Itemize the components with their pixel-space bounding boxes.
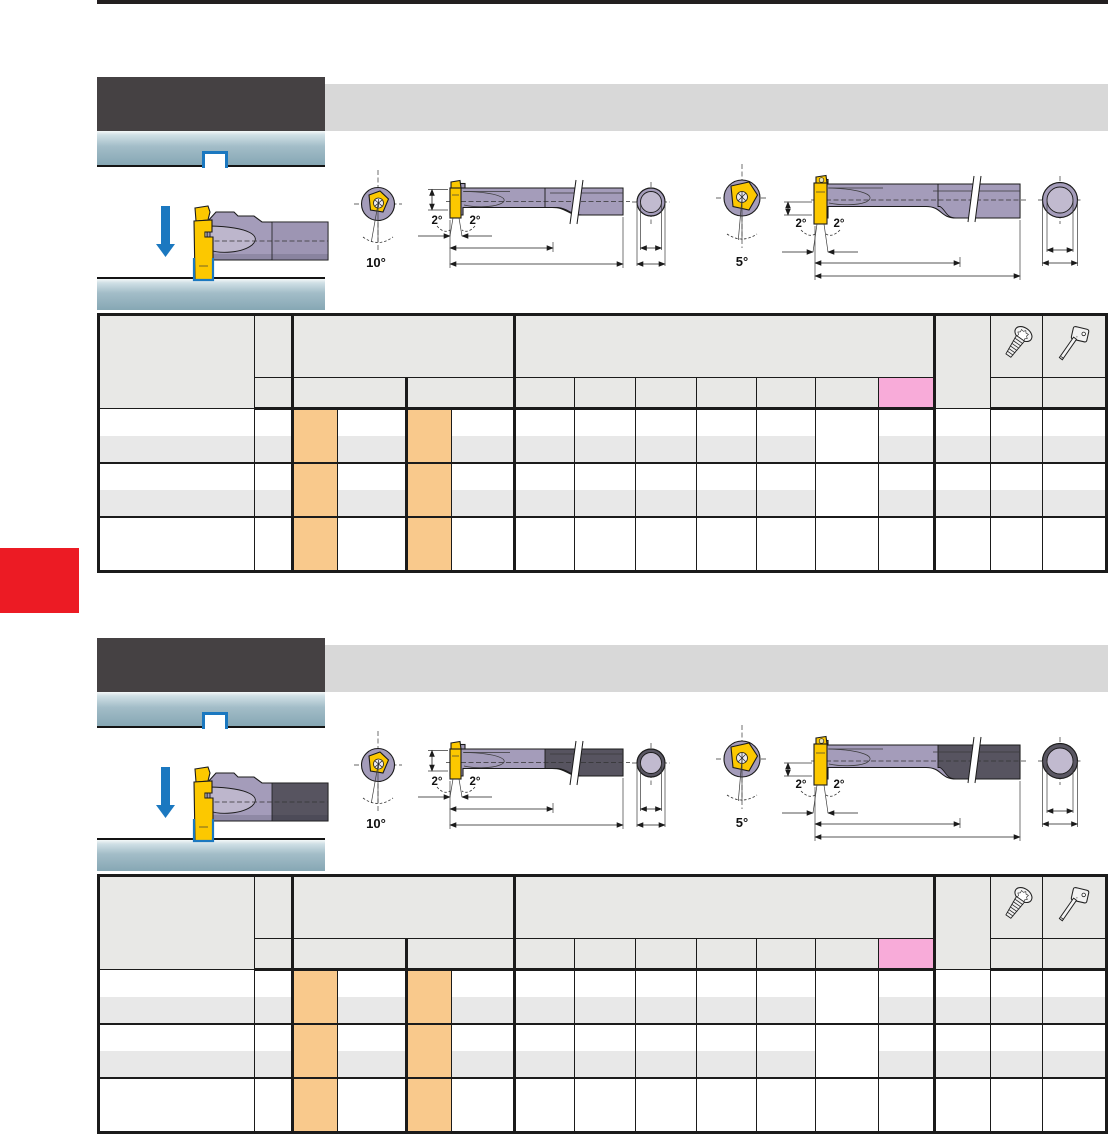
spec-cell (293, 463, 338, 490)
taper-angle-label: 2° (432, 215, 443, 227)
spec-cell (757, 490, 816, 517)
spec-cell (452, 1078, 515, 1133)
spec-header-cell (293, 939, 407, 970)
spec-cell (1043, 436, 1107, 463)
spec-cell (575, 436, 636, 463)
spec-header-cell (575, 939, 636, 970)
spec-cell (935, 970, 991, 997)
insert-seat-marker (202, 151, 228, 168)
section-subtitle-band (325, 84, 1108, 131)
spec-cell (293, 436, 338, 463)
spec-cell (407, 997, 452, 1024)
spec-cell (879, 997, 935, 1024)
spec-cell (575, 1024, 636, 1051)
spec-cell (515, 409, 575, 436)
spec-cell (636, 970, 697, 997)
spec-cell (935, 490, 991, 517)
spec-header-cell (1043, 939, 1107, 970)
catalog-page: 10° 2° 2° (0, 0, 1108, 1146)
grooving-insert (194, 767, 213, 841)
torx-screw-icon (999, 884, 1035, 926)
spec-cell (407, 1078, 452, 1133)
spec-cell (407, 436, 452, 463)
spec-cell (575, 463, 636, 490)
spec-cell (452, 970, 515, 997)
spec-cell (338, 970, 407, 997)
spec-cell (407, 463, 452, 490)
insert-side-view (451, 742, 461, 750)
spec-cell (255, 490, 293, 517)
spec-cell (338, 490, 407, 517)
spec-cell (816, 1024, 879, 1051)
spec-header-cell (255, 939, 293, 970)
spec-cell (879, 409, 935, 436)
spec-cell (338, 1051, 407, 1078)
spec-header-cell (636, 939, 697, 970)
diagram-boring-bar-10deg: 10° 2° 2° (340, 162, 690, 312)
spec-cell (515, 1051, 575, 1078)
spec-cell (935, 1024, 991, 1051)
spec-cell (407, 1024, 452, 1051)
spec-header-cell (991, 939, 1043, 970)
down-arrow-icon (161, 206, 170, 244)
spec-cell (991, 970, 1043, 997)
torx-key-icon (1053, 884, 1095, 926)
taper-angle-label: 2° (796, 779, 807, 791)
spec-header-cell (636, 378, 697, 409)
spec-cell (697, 997, 757, 1024)
spec-cell (935, 409, 991, 436)
section-title-bar (97, 638, 325, 692)
spec-cell (757, 1078, 816, 1133)
spec-cell (879, 1024, 935, 1051)
spec-cell (293, 1078, 338, 1133)
spec-cell (255, 409, 293, 436)
spec-header-cell (816, 939, 879, 970)
spec-cell (991, 1024, 1043, 1051)
spec-cell (991, 997, 1043, 1024)
spec-header-cell (697, 939, 757, 970)
spec-cell (636, 1078, 697, 1133)
spec-cell (697, 490, 757, 517)
spec-header-highlight-cell (879, 378, 935, 409)
spec-cell (293, 1051, 338, 1078)
spec-cell (99, 970, 255, 997)
spec-cell (255, 463, 293, 490)
spec-cell (697, 1024, 757, 1051)
spec-cell (255, 970, 293, 997)
spec-cell (452, 1024, 515, 1051)
insert-seat-marker (202, 712, 228, 729)
spec-cell (338, 1078, 407, 1133)
spec-cell (255, 1024, 293, 1051)
spec-header-cell (697, 378, 757, 409)
spec-cell (879, 1078, 935, 1133)
spec-cell (293, 1024, 338, 1051)
spec-cell (338, 409, 407, 436)
spec-cell (99, 1051, 255, 1078)
spec-cell (575, 409, 636, 436)
spec-cell (636, 1051, 697, 1078)
spec-cell (338, 1024, 407, 1051)
taper-angle-label: 2° (470, 776, 481, 788)
spec-cell (293, 970, 338, 997)
spec-header-group-dimensions (515, 876, 935, 939)
front-angle-label: 10° (366, 255, 386, 270)
spec-cell (575, 490, 636, 517)
spec-cell (515, 997, 575, 1024)
spec-cell (935, 1078, 991, 1133)
spec-cell (1043, 1024, 1107, 1051)
spec-cell (816, 1051, 879, 1078)
spec-cell (935, 436, 991, 463)
spec-cell (757, 1024, 816, 1051)
spec-cell (515, 1024, 575, 1051)
diagram-boring-bar-5deg: 5° 2° 2° (698, 162, 1108, 312)
spec-cell (697, 1051, 757, 1078)
spec-header-cell (816, 378, 879, 409)
spec-cell (99, 436, 255, 463)
product-section-2: 10° 2° 2° (0, 561, 1108, 1146)
spec-header-cell (991, 378, 1043, 409)
spec-cell (879, 970, 935, 997)
spec-cell (407, 1051, 452, 1078)
spec-cell (1043, 490, 1107, 517)
spec-cell (338, 997, 407, 1024)
spec-cell (816, 463, 879, 490)
spec-cell (757, 463, 816, 490)
grooving-insert (194, 206, 213, 280)
spec-cell (757, 997, 816, 1024)
spec-cell (697, 409, 757, 436)
spec-cell (99, 1078, 255, 1133)
spec-cell (407, 490, 452, 517)
spec-header-group-shank (293, 315, 515, 378)
spec-cell (515, 970, 575, 997)
spec-header-cell (255, 378, 293, 409)
spec-cell (293, 997, 338, 1024)
taper-angle-label: 2° (796, 218, 807, 230)
spec-cell (1043, 997, 1107, 1024)
spec-cell (697, 1078, 757, 1133)
product-photo (150, 761, 335, 859)
torx-screw-icon (999, 323, 1035, 365)
spec-header-cell (575, 378, 636, 409)
spec-cell (515, 463, 575, 490)
spec-header-designation (99, 315, 255, 409)
spec-cell (935, 1051, 991, 1078)
spec-cell (991, 490, 1043, 517)
spec-cell (407, 409, 452, 436)
spec-cell (575, 997, 636, 1024)
spec-header-cell (1043, 378, 1107, 409)
spec-cell (1043, 463, 1107, 490)
spec-cell (636, 409, 697, 436)
spec-cell (575, 970, 636, 997)
spec-cell (515, 490, 575, 517)
spec-cell (636, 1024, 697, 1051)
spec-cell (636, 463, 697, 490)
spec-cell (452, 463, 515, 490)
taper-angle-label: 2° (432, 776, 443, 788)
spec-header-screw (991, 315, 1043, 378)
spec-cell (697, 436, 757, 463)
spec-cell (1043, 970, 1107, 997)
spec-cell (697, 970, 757, 997)
spec-cell (697, 463, 757, 490)
spec-cell (452, 1051, 515, 1078)
spec-header-cell (255, 315, 293, 378)
spec-header-group-shank (293, 876, 515, 939)
spec-cell (1043, 1051, 1107, 1078)
spec-cell (816, 490, 879, 517)
diagram-boring-bar-10deg: 10° 2° 2° (340, 723, 690, 873)
spec-header-screw (991, 876, 1043, 939)
front-angle-label: 5° (736, 815, 748, 830)
taper-angle-label: 2° (834, 779, 845, 791)
product-photo (150, 200, 335, 298)
spec-cell (99, 463, 255, 490)
spec-cell (879, 463, 935, 490)
spec-cell (991, 1051, 1043, 1078)
spec-header-cell (515, 939, 575, 970)
spec-cell (991, 1078, 1043, 1133)
spec-cell (991, 436, 1043, 463)
spec-table (97, 874, 1108, 1134)
front-angle-label: 5° (736, 254, 748, 269)
spec-cell (757, 409, 816, 436)
spec-header-cell (407, 939, 515, 970)
spec-cell (816, 436, 879, 463)
spec-header-cell (407, 378, 515, 409)
spec-header-key (1043, 315, 1107, 378)
taper-angle-label: 2° (470, 215, 481, 227)
spec-cell (452, 409, 515, 436)
diagram-boring-bar-5deg: 5° 2° 2° (698, 723, 1108, 873)
spec-cell (816, 1078, 879, 1133)
spec-cell (293, 490, 338, 517)
spec-cell (452, 436, 515, 463)
spec-cell (816, 970, 879, 997)
section-title-bar (97, 77, 325, 131)
spec-cell (293, 409, 338, 436)
spec-cell (991, 463, 1043, 490)
spec-header-cell (757, 939, 816, 970)
spec-cell (407, 970, 452, 997)
section-subtitle-band (325, 645, 1108, 692)
spec-header-highlight-cell (879, 939, 935, 970)
spec-cell (1043, 1078, 1107, 1133)
spec-cell (757, 1051, 816, 1078)
spec-cell (255, 1078, 293, 1133)
spec-header-cell (935, 315, 991, 409)
spec-cell (991, 409, 1043, 436)
spec-cell (636, 490, 697, 517)
insert-side-view (451, 181, 461, 189)
spec-cell (99, 409, 255, 436)
spec-cell (338, 436, 407, 463)
spec-cell (757, 970, 816, 997)
spec-cell (255, 997, 293, 1024)
spec-cell (879, 436, 935, 463)
spec-cell (515, 436, 575, 463)
spec-cell (757, 436, 816, 463)
spec-cell (636, 997, 697, 1024)
spec-cell (515, 1078, 575, 1133)
spec-cell (255, 436, 293, 463)
spec-header-designation (99, 876, 255, 970)
spec-cell (575, 1051, 636, 1078)
front-angle-label: 10° (366, 816, 386, 831)
spec-cell (99, 997, 255, 1024)
spec-header-cell (515, 378, 575, 409)
spec-cell (935, 463, 991, 490)
spec-cell (879, 1051, 935, 1078)
spec-cell (338, 463, 407, 490)
torx-key-icon (1053, 323, 1095, 365)
spec-cell (816, 409, 879, 436)
spec-cell (636, 436, 697, 463)
taper-angle-label: 2° (834, 218, 845, 230)
spec-table (97, 313, 1108, 573)
spec-cell (575, 1078, 636, 1133)
spec-cell (1043, 409, 1107, 436)
spec-header-cell (757, 378, 816, 409)
spec-header-cell (255, 876, 293, 939)
spec-cell (452, 490, 515, 517)
spec-cell (452, 997, 515, 1024)
spec-header-cell (935, 876, 991, 970)
spec-cell (99, 490, 255, 517)
spec-header-cell (293, 378, 407, 409)
spec-cell (935, 997, 991, 1024)
spec-cell (816, 997, 879, 1024)
spec-cell (255, 1051, 293, 1078)
spec-header-key (1043, 876, 1107, 939)
spec-cell (879, 490, 935, 517)
spec-header-group-dimensions (515, 315, 935, 378)
down-arrow-icon (161, 767, 170, 805)
product-section-1: 10° 2° 2° (0, 0, 1108, 585)
spec-cell (99, 1024, 255, 1051)
